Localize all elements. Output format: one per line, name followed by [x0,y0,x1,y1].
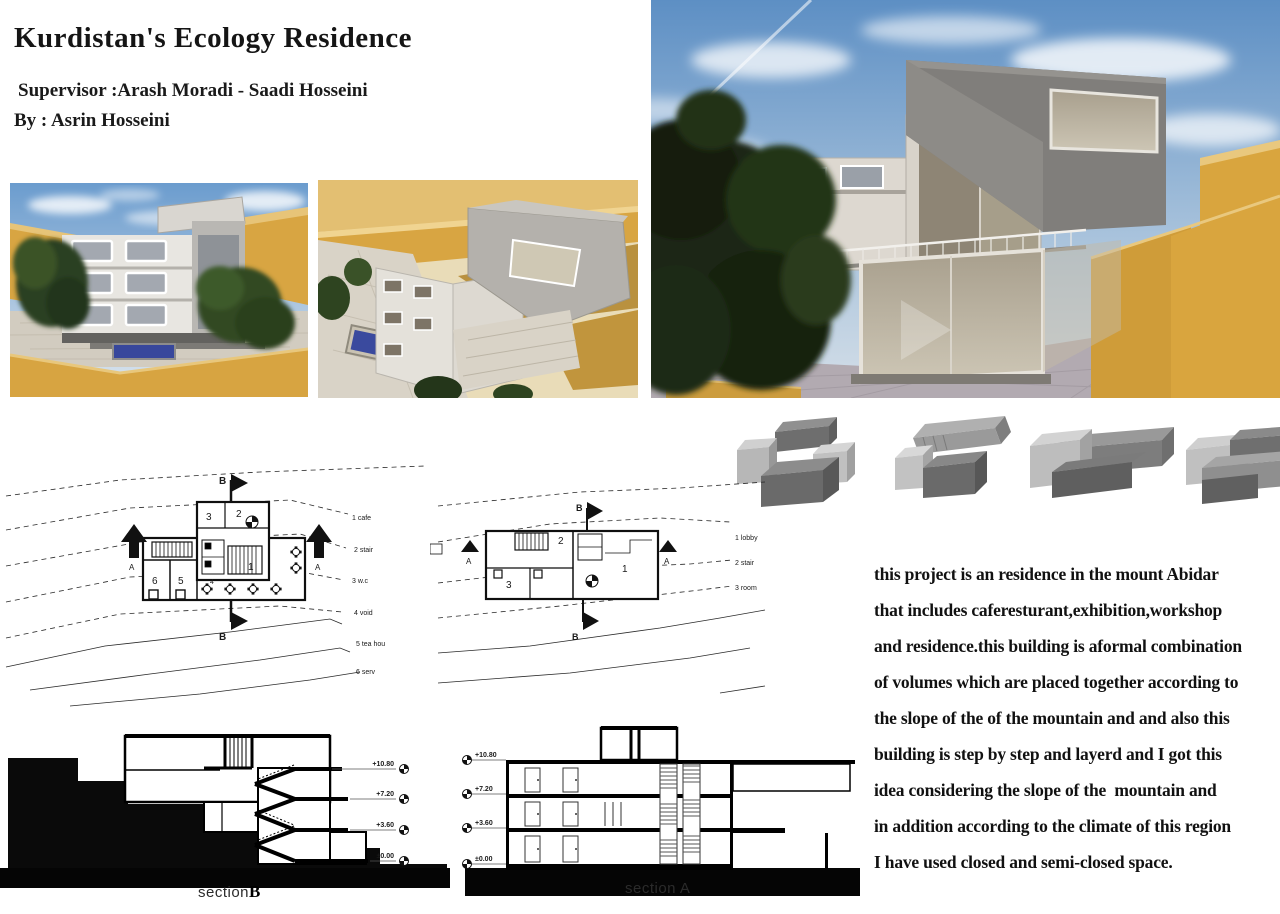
massing-step-2 [895,416,1011,498]
massing-diagrams [700,402,1280,517]
north-arrow-icon [246,516,258,528]
marker-a-left: A [466,557,472,566]
level-label: +3.60 [376,822,394,829]
description-line: of volumes which are placed together acc… [874,664,1274,700]
level-label: ±0.00 [377,853,395,860]
project-description: this project is an residence in the moun… [874,556,1274,880]
plan-b-legend: 1 cafe 2 stair 3 w.c 4 void 5 tea hou 6 … [352,515,385,676]
north-arrow-icon [586,575,598,587]
marker-b-top: B [576,503,583,513]
description-line: in addition according to the climate of … [874,808,1274,844]
description-line: that includes caferesturant,exhibition,w… [874,592,1274,628]
description-line: building is step by step and layerd and … [874,736,1274,772]
room-number: 4 [210,579,214,586]
level-label: +7.20 [475,786,493,793]
description-line: idea considering the slope of the mounta… [874,772,1274,808]
legend-item: 1 lobby [735,535,758,542]
marker-a-right: A [315,563,321,572]
room-number: 5 [178,576,184,587]
floor-plan-b: 1 cafe 2 stair 3 w.c 4 void 5 tea hou 6 … [0,462,430,707]
plan-a-legend: 1 lobby 2 stair 3 room [735,535,758,592]
legend-item: 3 room [735,585,757,592]
section-b-label-text: section [198,884,249,901]
pool [113,344,175,359]
marker-b-bottom: B [572,632,579,642]
description-line: and residence.this building is aformal c… [874,628,1274,664]
elevation-markers: +10.80 +7.20 +3.60 ±0.00 [463,752,507,869]
render-aerial-view [318,180,638,398]
level-label: +10.80 [372,761,394,768]
level-label: +7.20 [376,791,394,798]
page-title: Kurdistan's Ecology Residence [14,22,412,55]
massing-step-3 [1030,427,1174,498]
massing-step-4 [1186,425,1280,504]
building-section [506,726,855,870]
section-a-label: section A [625,880,690,897]
room-number: 6 [152,576,158,587]
section-b-label-letter: B [249,882,261,901]
description-line: this project is an residence in the moun… [874,556,1274,592]
legend-item: 3 w.c [352,578,368,585]
legend-item: 2 stair [735,560,755,567]
level-label: +3.60 [475,820,493,827]
room-number: 1 [622,564,628,575]
room-number: 3 [506,580,512,591]
supervisor-line: Supervisor :Arash Moradi - Saadi Hossein… [18,80,368,102]
room-number: 2 [558,536,564,547]
render-main-perspective [651,0,1280,398]
level-label: ±0.00 [475,856,493,863]
section-b-label: sectionB [198,882,261,902]
marker-a-left: A [129,563,135,572]
room-number: 3 [206,512,212,523]
level-label: +10.80 [475,752,497,759]
room-number: 1 [248,562,254,573]
section-b-drawing: +10.80 +7.20 +3.60 ±0.00 [0,724,455,899]
marker-b-bottom: B [219,632,226,643]
render-front-view [10,183,308,397]
description-line: I have used closed and semi-closed space… [874,844,1274,880]
marker-b-top: B [219,476,226,487]
legend-item: 5 tea hou [356,641,385,648]
presentation-board: Kurdistan's Ecology Residence Supervisor… [0,0,1280,914]
legend-item: 4 void [354,610,373,617]
marker-a-right: A [664,557,670,566]
room-number: 2 [236,509,242,520]
description-line: the slope of the of the mountain and and… [874,700,1274,736]
floor-plan-a: 1 lobby 2 stair 3 room [430,478,770,708]
legend-item: 1 cafe [352,515,371,522]
legend-item: 2 stair [354,547,374,554]
legend-item: 6 serv [356,669,376,676]
plan-a-building: 1 2 3 [430,531,658,599]
plan-b-building: 1 2 3 4 5 6 [143,502,305,600]
author-line: By : Asrin Hosseini [14,110,170,132]
